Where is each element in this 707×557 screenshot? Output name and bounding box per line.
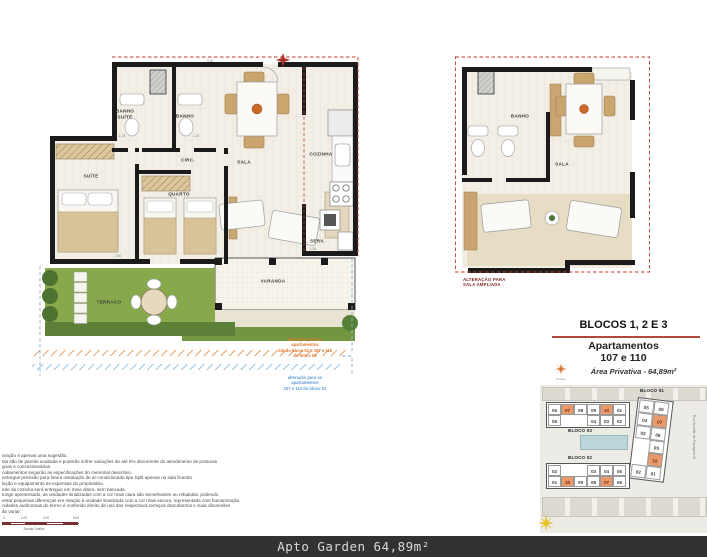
unit-cell[interactable]: 01 <box>645 466 661 481</box>
dim-label: 1.38 <box>310 247 317 251</box>
bloco-03-row1: 06 07 08 09 10 01 <box>548 404 628 415</box>
variant-note: ALTERAÇÃO PARA SALA AMPLIADA <box>463 277 506 288</box>
apartment-type-label: Apto Garden 64,89m² <box>277 539 430 554</box>
dim-label: 3.10 <box>207 59 214 63</box>
unit-cell[interactable]: 03 <box>587 465 600 476</box>
varanda-floor <box>215 258 355 310</box>
annotation-blue: alteração para os apartamentos 107 e 110… <box>277 375 334 391</box>
bloco-01-building[interactable]: 0506 0407 0308 09 10 0201 <box>628 397 674 483</box>
unit-cell[interactable]: 02 <box>548 465 561 476</box>
disclaimer-line: nidades autônomas do térreo é conferido … <box>2 503 252 509</box>
info-block: BLOCOS 1, 2 E 3 Apartamentos 107 e 110 P… <box>540 315 707 385</box>
compass-label: Poente <box>552 377 570 381</box>
label-variant-banho: BANHO <box>511 113 529 119</box>
unit-cell[interactable]: 03 <box>600 415 613 426</box>
label-terraco: TERRAÇO <box>97 299 122 305</box>
blocks-title: BLOCOS 1, 2 E 3 <box>540 319 707 331</box>
unit-cell[interactable]: 07 <box>561 404 574 415</box>
site-key-map: 06 07 08 09 10 01 05 04 03 02 BLOCO 03 B… <box>540 385 707 533</box>
unit-cell[interactable]: 08 <box>574 404 587 415</box>
label-varanda: VARANDA <box>261 278 286 284</box>
unit-cell[interactable]: 09 <box>574 476 587 487</box>
label-circ: CIRC. <box>181 157 195 163</box>
terrace-garden <box>42 268 235 336</box>
bloco-02-row2: 01 10 09 08 07 06 <box>548 476 628 487</box>
unit-cell[interactable]: 09 <box>587 404 600 415</box>
label-variant-sala: SALA <box>555 161 569 167</box>
main-floor-plan: BANHO SUÍTE BANHO CIRC. SALA COZINHA SUÍ… <box>32 52 362 392</box>
bloco-02-label: BLOCO 02 <box>568 455 592 460</box>
bloco-03-building[interactable]: 06 07 08 09 10 01 05 04 03 02 <box>546 402 630 428</box>
bloco-01-label: BLOCO 01 <box>640 388 664 393</box>
disclaimer-line: tunge apresentado, as unidades sinalizad… <box>2 492 252 498</box>
bloco-03-row2: 05 04 03 02 <box>548 415 628 426</box>
shaft-duct <box>150 70 166 94</box>
bloco-02-row1: 02 03 04 05 <box>548 465 628 476</box>
title-underline <box>552 336 700 338</box>
sun-icon <box>538 515 554 531</box>
footer-bar: Apto Garden 64,89m² <box>0 536 707 557</box>
unit-cell[interactable]: 01 <box>548 476 561 487</box>
unit-cell[interactable]: 06 <box>548 404 561 415</box>
unit-cell[interactable]: 05 <box>613 465 626 476</box>
label-sala: SALA <box>237 159 251 165</box>
label-banho: BANHO <box>176 113 194 119</box>
alteration-hatch-blue <box>32 364 342 370</box>
annotation-orange: alteração para os apartamentos 110 do bl… <box>277 337 334 359</box>
unit-cell[interactable]: 07 <box>600 476 613 487</box>
label-cozinha: COZINHA <box>309 151 332 157</box>
unit-cell[interactable]: 02 <box>630 464 646 479</box>
unit-cell[interactable]: 05 <box>548 415 561 426</box>
variant-ledge <box>592 68 630 80</box>
floorplan-page: BANHO SUÍTE BANHO CIRC. SALA COZINHA SUÍ… <box>0 0 707 557</box>
unit-cell[interactable]: 03 <box>635 425 651 440</box>
variant-shaft-duct <box>478 70 494 94</box>
tree <box>342 315 358 331</box>
graphic-scale: 0 1.00 2.00 5.00 Escala Gráfica <box>2 516 92 534</box>
unit-cell[interactable]: 08 <box>587 476 600 487</box>
context-buildings-top <box>542 387 707 401</box>
unit-cell[interactable]: 04 <box>600 465 613 476</box>
disclaimer-text: oração é apenas uma sugestão. tas são de… <box>2 453 252 515</box>
disclaimer-line: ão variar. <box>2 509 252 515</box>
variant-floor-plan: BANHO SALA ALTERAÇÃO PARA SALA AMPLIADA <box>448 52 663 297</box>
apartments-subtitle: Apartamentos <box>540 340 707 352</box>
label-quarto: QUARTO <box>168 191 190 197</box>
dim-label: 2.80 <box>115 254 122 258</box>
dim-label: 1.28 <box>119 134 126 138</box>
street-name: Rua Servidão de Passagem 01 <box>692 415 696 459</box>
dim-label: 1.28 <box>193 134 200 138</box>
unit-cell[interactable]: 10 <box>600 404 613 415</box>
scale-tick: 2.00 <box>43 516 49 520</box>
unit-cell[interactable]: 01 <box>613 404 626 415</box>
unit-cell[interactable]: 02 <box>613 415 626 426</box>
scale-tick: 0 <box>3 516 5 520</box>
bloco-02-building[interactable]: 02 03 04 05 01 10 09 08 07 06 <box>546 463 630 489</box>
private-area-label: Área Privativa - 64,89m² <box>560 367 707 376</box>
label-suite: SUÍTE <box>83 173 98 179</box>
scale-caption: Escala Gráfica <box>24 527 45 531</box>
label-banho-suite: BANHO SUÍTE <box>116 109 134 120</box>
unit-cell[interactable]: 06 <box>613 476 626 487</box>
bloco-03-label: BLOCO 03 <box>568 428 592 433</box>
scale-bar <box>2 522 78 525</box>
pavement <box>215 310 355 327</box>
pool <box>580 435 628 450</box>
scale-tick: 1.00 <box>21 516 27 520</box>
unit-cell[interactable]: 10 <box>561 476 574 487</box>
variant-floor-plan-drawing <box>448 52 663 297</box>
context-buildings-bottom <box>542 497 707 517</box>
unit-cell[interactable]: 04 <box>587 415 600 426</box>
scale-tick: 5.00 <box>73 516 79 520</box>
label-a-serv: A. SERV. <box>303 238 325 244</box>
